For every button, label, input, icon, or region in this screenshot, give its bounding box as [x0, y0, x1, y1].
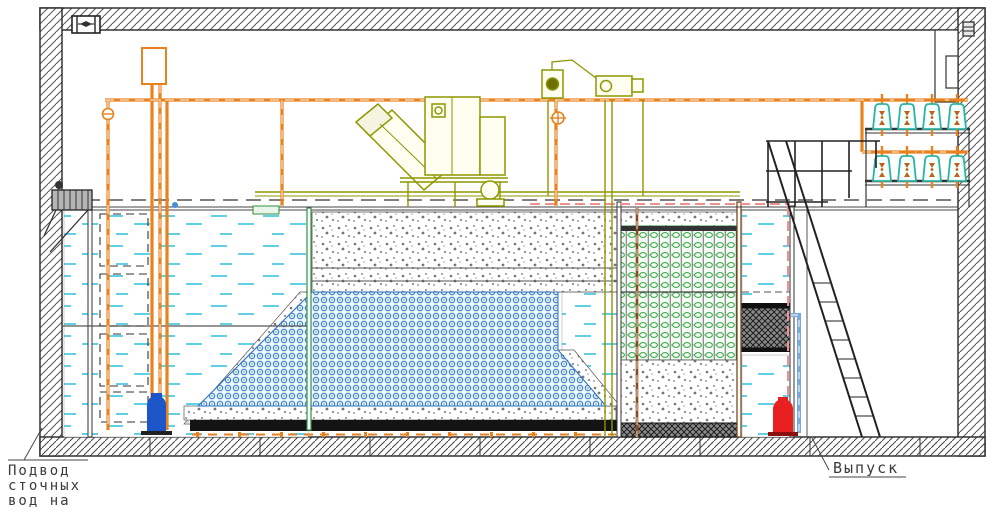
right-wall [958, 8, 985, 456]
blower-icon [898, 146, 916, 188]
blower-icon [923, 94, 941, 136]
blower-icon [873, 94, 891, 136]
divider-wall-5 [790, 206, 794, 437]
roof-fan-icon [72, 16, 100, 33]
divider-wall-2 [307, 208, 311, 430]
support-grid-right [621, 423, 737, 437]
dark-mesh-block [740, 303, 790, 352]
green-channel-box [253, 206, 279, 214]
gravel-strip-bottom [184, 406, 616, 420]
gravel-bed-top [312, 212, 618, 292]
inlet-label-line3: вод на [8, 493, 71, 509]
outlet-tank-upper-water [742, 210, 790, 305]
divider-wall-3 [617, 202, 621, 437]
blower-icon [923, 146, 941, 188]
roof-slab [40, 8, 985, 30]
blower-icon [948, 146, 966, 188]
treatment-plant-drawing: Подвод сточных вод на очистку Выпуск [0, 0, 1000, 512]
air-receiver-box [142, 48, 166, 84]
inlet-label-line2: сточных [8, 478, 81, 494]
left-wall [40, 8, 62, 456]
blue-fitting [172, 202, 178, 208]
aeration-plate [190, 420, 618, 431]
divider-wall-1 [88, 202, 92, 437]
blower-icon [948, 94, 966, 136]
blower-icon [898, 94, 916, 136]
inlet-label: Подвод сточных вод на очистку [8, 463, 81, 512]
inlet-chamber-water [64, 210, 88, 437]
green-biofilter-media [621, 226, 737, 360]
floor-slab [40, 437, 985, 456]
outlet-label: Выпуск [833, 459, 899, 477]
inlet-label-line1: Подвод [8, 463, 71, 479]
divider-wall-4 [737, 202, 741, 437]
drawing-svg: Подвод сточных вод на очистку Выпуск [0, 0, 1000, 512]
valve-icon [102, 109, 114, 120]
inlet-label-line4: очистку [8, 508, 81, 512]
